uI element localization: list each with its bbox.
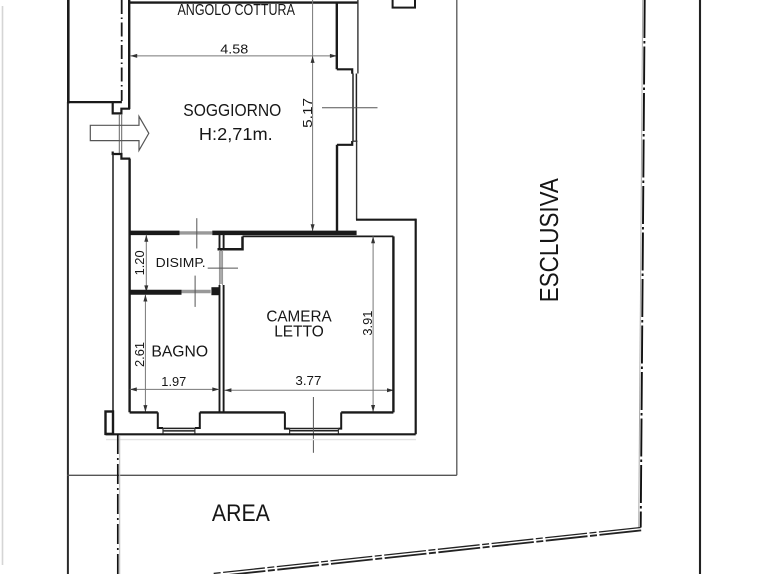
svg-text:BAGNO: BAGNO (151, 344, 208, 361)
svg-text:H:2,71m.: H:2,71m. (199, 124, 273, 144)
svg-text:3.77: 3.77 (295, 373, 321, 388)
svg-text:3.91: 3.91 (360, 311, 375, 336)
svg-text:ESCLUSIVA: ESCLUSIVA (534, 178, 564, 303)
svg-text:ANGOLO COTTURA: ANGOLO COTTURA (177, 2, 295, 19)
svg-text:5.17: 5.17 (300, 98, 315, 128)
svg-text:4.58: 4.58 (220, 42, 248, 57)
svg-text:1.97: 1.97 (161, 374, 186, 389)
svg-text:SOGGIORNO: SOGGIORNO (183, 100, 281, 120)
svg-text:DISIMP.: DISIMP. (156, 255, 206, 270)
svg-text:AREA: AREA (212, 500, 270, 527)
svg-text:1.20: 1.20 (132, 250, 147, 275)
svg-text:2.61: 2.61 (132, 342, 147, 367)
svg-text:LETTO: LETTO (274, 323, 324, 340)
